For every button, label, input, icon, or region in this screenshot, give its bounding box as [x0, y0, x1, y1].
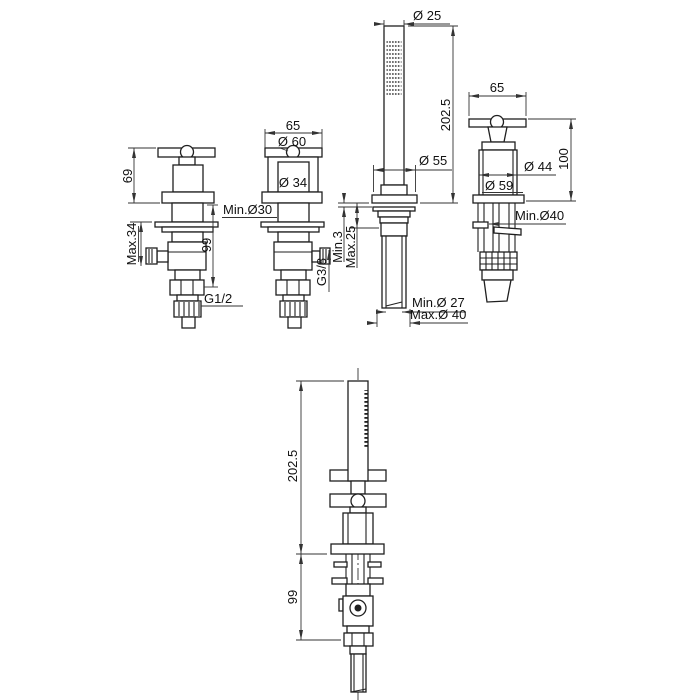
handshower-shapes: [372, 26, 417, 308]
inlet-tube: [351, 654, 366, 692]
dim-body-diameter: Ø 44: [524, 159, 552, 174]
dim-height-above-deck: 100: [556, 148, 571, 170]
flange: [162, 192, 214, 203]
threaded-inlet: [280, 301, 307, 317]
figure-valve-perspective: 65 100 Ø 44 Ø 59 Min.Ø40: [469, 80, 576, 302]
label-min-hole-diameter: Min.Ø40: [515, 208, 564, 223]
dim-flange-diameter: Ø 59: [485, 178, 513, 193]
label-min-hole-diameter: Min.Ø30: [223, 202, 272, 217]
flange: [473, 195, 524, 203]
dim-wand-diameter: Ø 25: [413, 8, 441, 23]
figure-valve-front-g38: 65 Ø 60 Ø 34 Min.Ø30 G3/8: [222, 118, 330, 328]
technical-drawing-sheet: 69 Max.34 99 G1/2: [0, 0, 700, 700]
flange: [331, 544, 384, 554]
handshower-side-shapes: [330, 368, 386, 700]
dim-depth-below-deck: 99: [199, 238, 214, 252]
figure-handshower-side: 202.5 99: [285, 368, 386, 700]
dim-handle-width: 65: [490, 80, 504, 95]
dim-height-above-deck: 202.5: [285, 450, 300, 483]
dim-depth-below-deck: 99: [285, 590, 300, 604]
threaded-inlet: [174, 301, 201, 317]
label-outlet-thread: G3/8: [314, 258, 329, 286]
dim-height-above-deck: 69: [120, 169, 135, 183]
deck-plate: [155, 222, 218, 227]
deck-plate: [261, 222, 324, 227]
pivot-hub: [351, 494, 365, 508]
handshower-side-dimensions: 202.5 99: [285, 381, 344, 640]
spray-face-dots: [387, 40, 402, 97]
escutcheon: [372, 195, 417, 203]
faucet-dimension-drawing: 69 Max.34 99 G1/2: [0, 0, 700, 700]
valve-body: [173, 165, 203, 192]
hex-nut: [344, 633, 373, 646]
dim-height-above-deck: 202.5: [438, 99, 453, 132]
dim-max-deck-thickness: Max.25: [343, 226, 358, 269]
hex-nut: [170, 280, 204, 295]
hex-nut: [276, 280, 310, 295]
dim-handle-width: 65: [286, 118, 300, 133]
figure-valve-front-g12: 69 Max.34 99 G1/2: [120, 146, 243, 329]
dim-max-deck-thickness: Max.34: [124, 223, 139, 266]
valve-body-shapes: [261, 146, 330, 329]
label-inlet-thread: G1/2: [204, 291, 232, 306]
dim-escutcheon-diameter: Ø 55: [419, 153, 447, 168]
figure-handshower-front: Ø 25 202.5 Ø 55 Min.3 Max.25 Min.Ø 27: [330, 8, 468, 327]
label-max-hole-diameter: Max.Ø 40: [410, 307, 466, 322]
dim-body-diameter: Ø 34: [279, 175, 307, 190]
dim-handle-diameter: Ø 60: [278, 134, 306, 149]
hose-socket: [381, 223, 407, 236]
spray-face-edge: [364, 390, 368, 447]
